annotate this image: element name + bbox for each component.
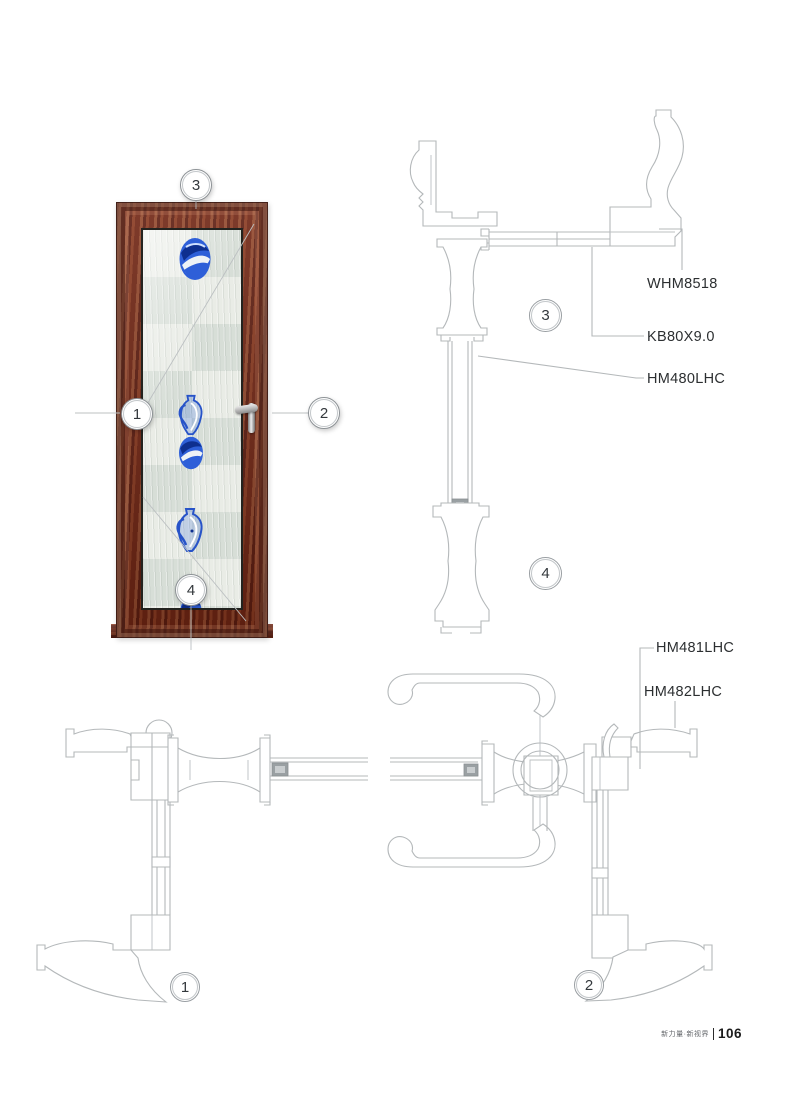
callout-number: 4 [541, 565, 549, 582]
door-glass [141, 228, 243, 610]
label-kb80x9-0: KB80X9.0 [647, 329, 715, 345]
callout-door-3: 3 [180, 169, 212, 201]
footer-brand: 新力量·新视界 [661, 1029, 709, 1039]
callout-section-4: 4 [529, 557, 562, 590]
callout-door-1: 1 [121, 398, 153, 430]
callout-number: 4 [187, 582, 195, 599]
callout-section-2: 2 [574, 970, 604, 1000]
callout-number: 3 [192, 177, 200, 194]
footer: 新力量·新视界 106 [0, 1026, 742, 1041]
label-whm8518: WHM8518 [647, 276, 718, 292]
label-hm481lhc: HM481LHC [656, 640, 734, 656]
label-hm482lhc: HM482LHC [644, 684, 722, 700]
callout-number: 1 [133, 406, 141, 423]
footer-page-number: 106 [718, 1026, 742, 1041]
footer-divider [713, 1028, 714, 1040]
callout-door-2: 2 [308, 397, 340, 429]
section-drawing-lock [388, 648, 712, 1001]
callout-section-3: 3 [529, 299, 562, 332]
callout-number: 1 [181, 979, 189, 996]
glass-motif-vase-lower [174, 502, 206, 558]
callout-door-4: 4 [175, 574, 207, 606]
glass-motif-swirl-middle [177, 436, 205, 470]
callout-number: 3 [541, 307, 549, 324]
section-drawing-head [410, 110, 683, 633]
section-drawing-hinge [37, 720, 368, 1002]
callout-number: 2 [320, 405, 328, 422]
label-hm480lhc: HM480LHC [647, 371, 725, 387]
glass-motif-swirl-top [178, 237, 212, 281]
callout-section-1: 1 [170, 972, 200, 1002]
callout-number: 2 [585, 977, 593, 994]
catalog-page: { "callouts": { "c1": "1", "c2": "2", "c… [0, 0, 800, 1093]
glass-motif-vase-upper [176, 394, 206, 436]
